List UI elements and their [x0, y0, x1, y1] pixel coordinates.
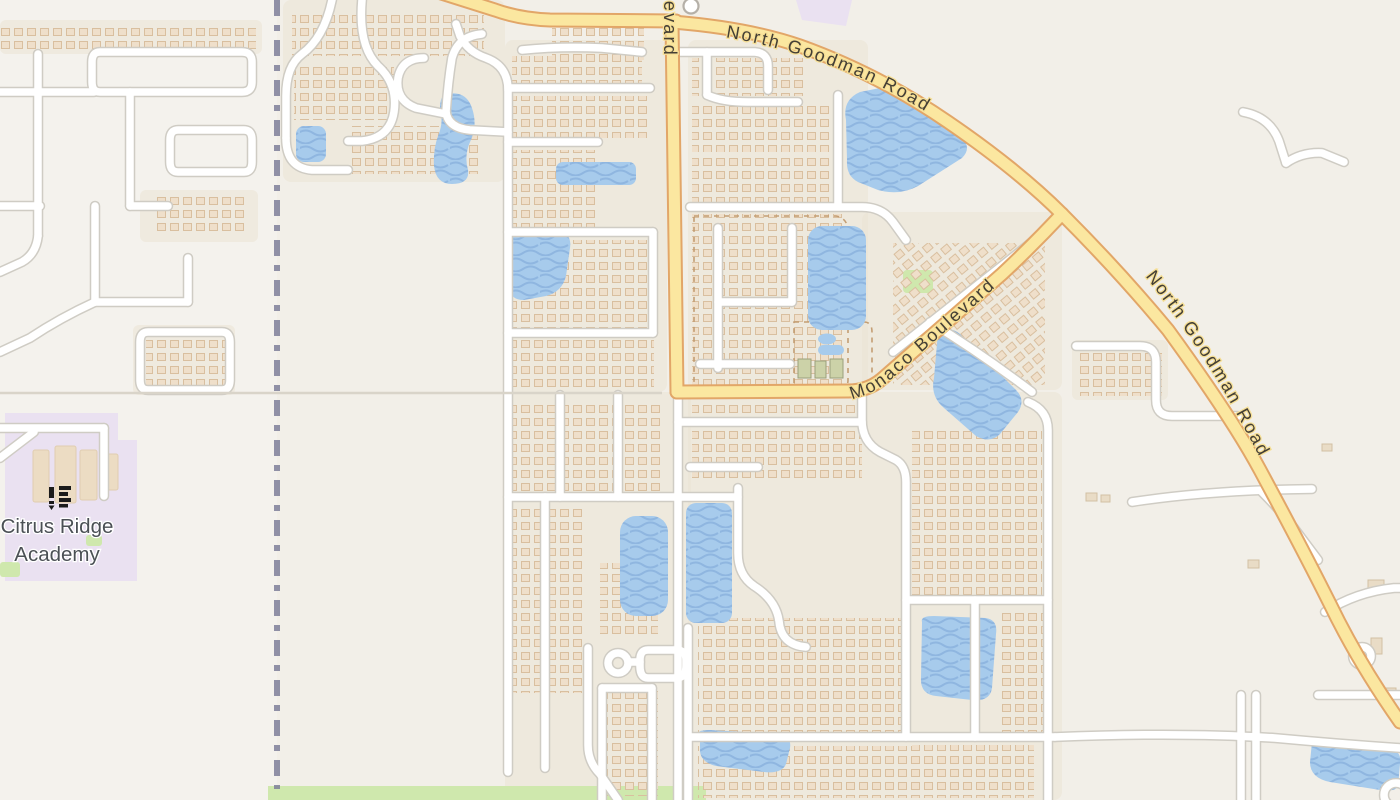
school-label-line1: Citrus Ridge	[1, 515, 114, 538]
pond	[296, 126, 326, 162]
pond	[556, 162, 636, 185]
major-road	[672, 22, 677, 392]
school-icon	[49, 486, 72, 510]
map-svg: North Goodman Road North Goodman Road Mo…	[0, 0, 1400, 800]
pool	[818, 334, 836, 345]
road-label-boulevard-partial: Boulevard	[660, 0, 680, 57]
school-label-line2: Academy	[14, 543, 100, 566]
pond	[921, 616, 996, 700]
pond	[620, 516, 668, 616]
map-canvas[interactable]: North Goodman Road North Goodman Road Mo…	[0, 0, 1400, 800]
pond	[808, 226, 866, 330]
pond	[686, 503, 732, 623]
poi-circle-icon[interactable]	[684, 0, 699, 14]
pool-2	[818, 345, 844, 355]
